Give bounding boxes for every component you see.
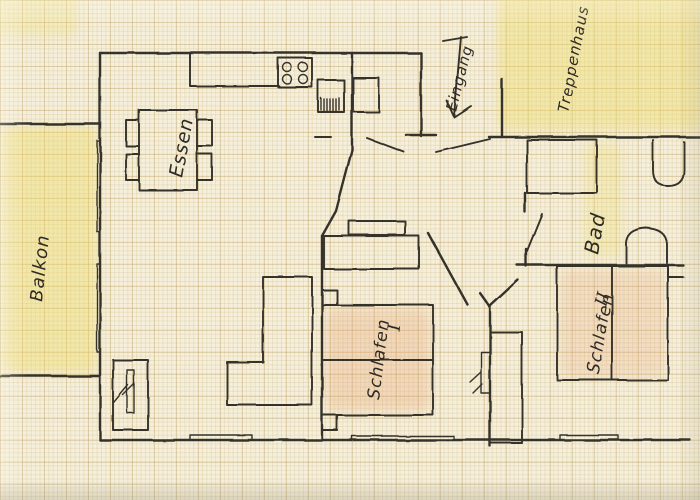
kitchen-counter	[190, 53, 279, 86]
room-label-balkon: Balkon	[26, 233, 54, 302]
wall-hall-diagonal-right	[490, 280, 518, 306]
nightstand	[322, 415, 337, 430]
door-leaf-bath	[527, 214, 542, 251]
nightstand	[322, 290, 337, 305]
stove-burner-icon	[299, 63, 308, 72]
bathtub	[527, 140, 597, 193]
chair	[197, 120, 212, 146]
kitchen-sink	[318, 80, 344, 112]
room-label-bad: Bad	[579, 211, 610, 256]
radiator-mark-icon	[470, 372, 482, 393]
l-shaped-wardrobe	[227, 277, 312, 405]
toilet	[653, 140, 684, 186]
wardrobe	[490, 332, 522, 443]
kitchen-dining	[126, 53, 379, 190]
room-label-treppenhaus: Treppenhaus	[554, 4, 592, 114]
chair	[126, 120, 139, 146]
stove-burner-icon	[283, 63, 292, 72]
stove	[278, 58, 312, 87]
room-numeral-schlafen2: II	[591, 290, 614, 309]
chair	[197, 154, 212, 180]
stove-burner-icon	[283, 75, 292, 84]
sideboard-top	[349, 221, 405, 235]
doors-windows	[97, 137, 618, 440]
floorplan-ink-layer: Balkon Essen Eingang Treppenhaus Bad Sch…	[0, 0, 700, 500]
bedroom2-furniture	[470, 266, 668, 443]
room-label-eingang: Eingang	[442, 43, 476, 113]
hall-cabinet	[353, 78, 379, 112]
radiator-small	[481, 352, 490, 393]
bathroom-fixtures	[527, 140, 684, 263]
wall-living-diagonal	[322, 150, 352, 236]
wall-hall-stub	[480, 293, 490, 307]
stove-burner-icon	[299, 75, 308, 84]
chair	[126, 154, 139, 180]
arrow-crossbar	[443, 37, 467, 41]
door-leaf-hall	[367, 138, 404, 152]
radiator-fin	[127, 370, 134, 413]
radiator-mark-icon	[114, 384, 134, 402]
wall-notch-left	[542, 265, 557, 277]
wall-hall-diagonal-left	[428, 233, 467, 304]
sideboard	[324, 236, 419, 269]
room-label-essen: Essen	[165, 115, 197, 178]
wall-notch-right	[668, 265, 683, 277]
washbasin	[626, 228, 667, 263]
door-leaf-entrance	[436, 139, 490, 152]
floorplan-sketch: Balkon Essen Eingang Treppenhaus Bad Sch…	[0, 0, 700, 500]
sink-hatch-icon	[321, 98, 339, 111]
